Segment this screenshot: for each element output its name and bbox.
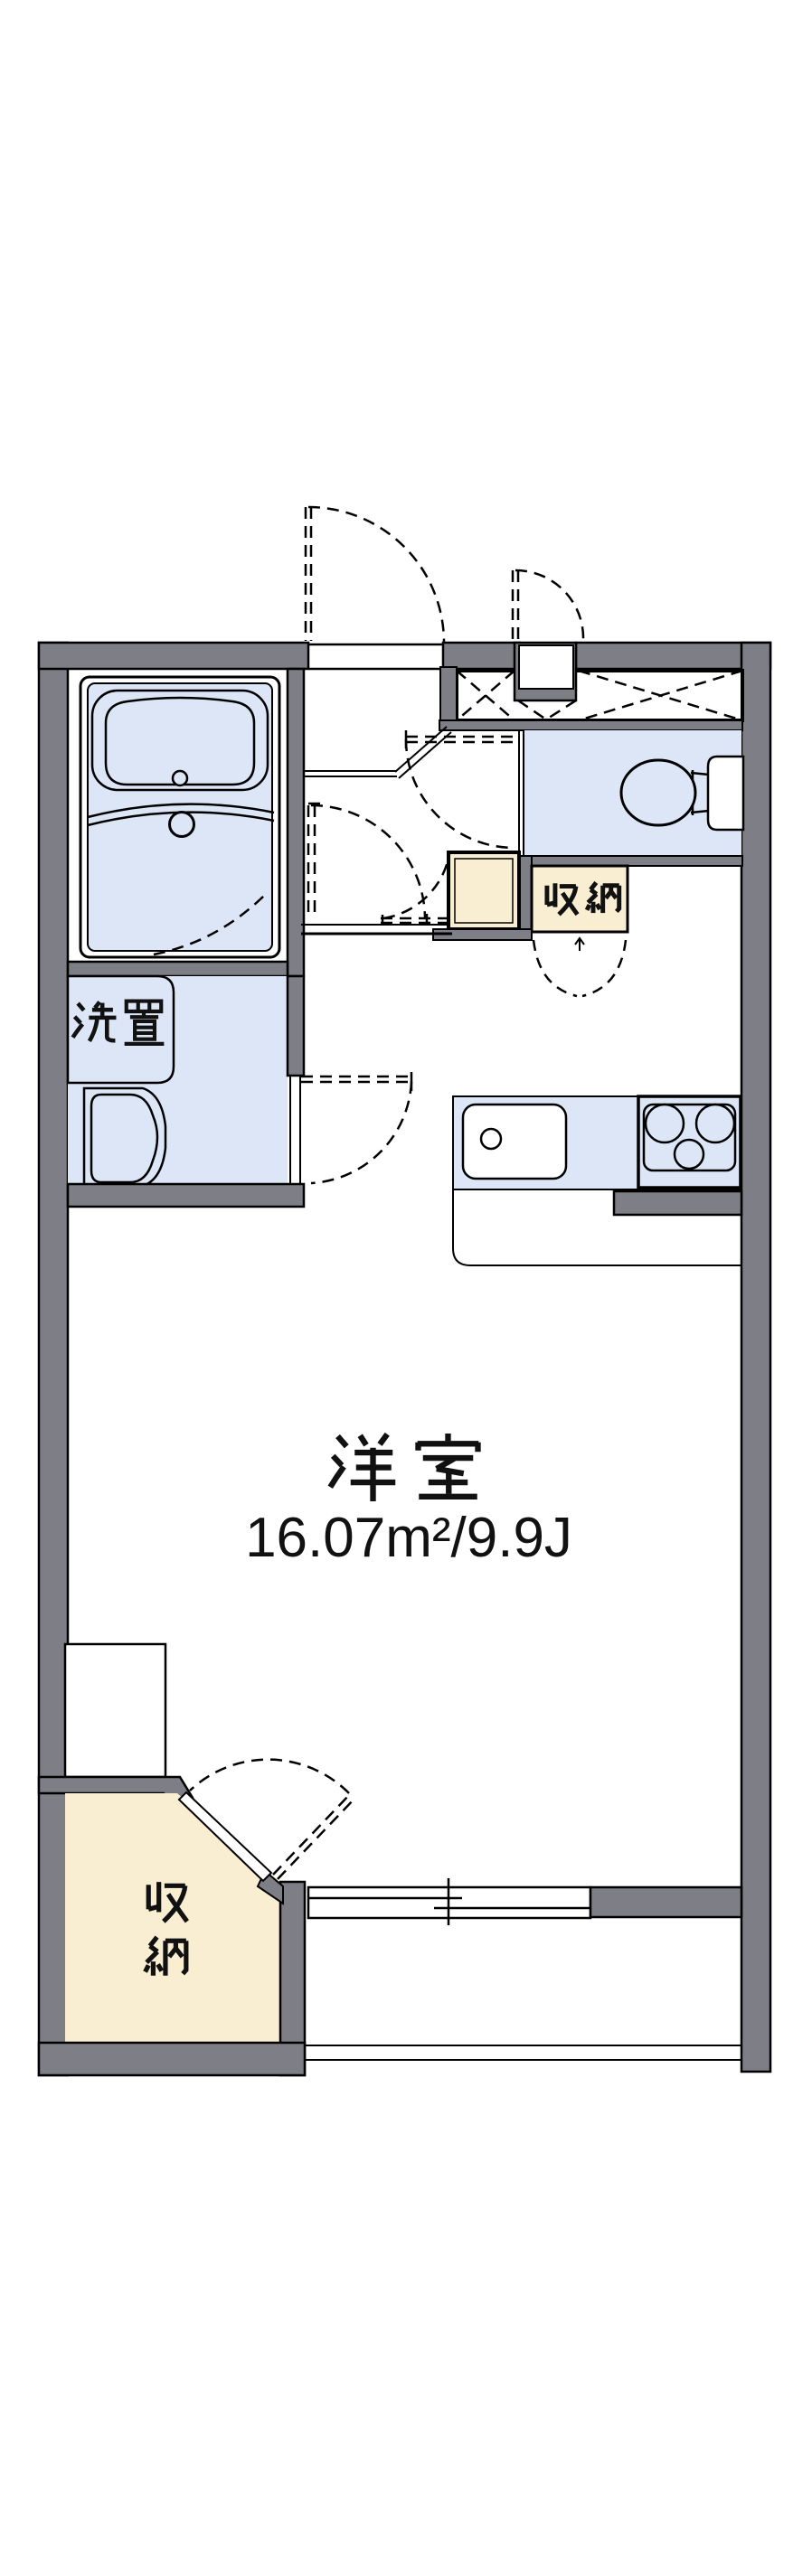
svg-text:16.07m²/9.9J: 16.07m²/9.9J <box>245 1507 572 1569</box>
